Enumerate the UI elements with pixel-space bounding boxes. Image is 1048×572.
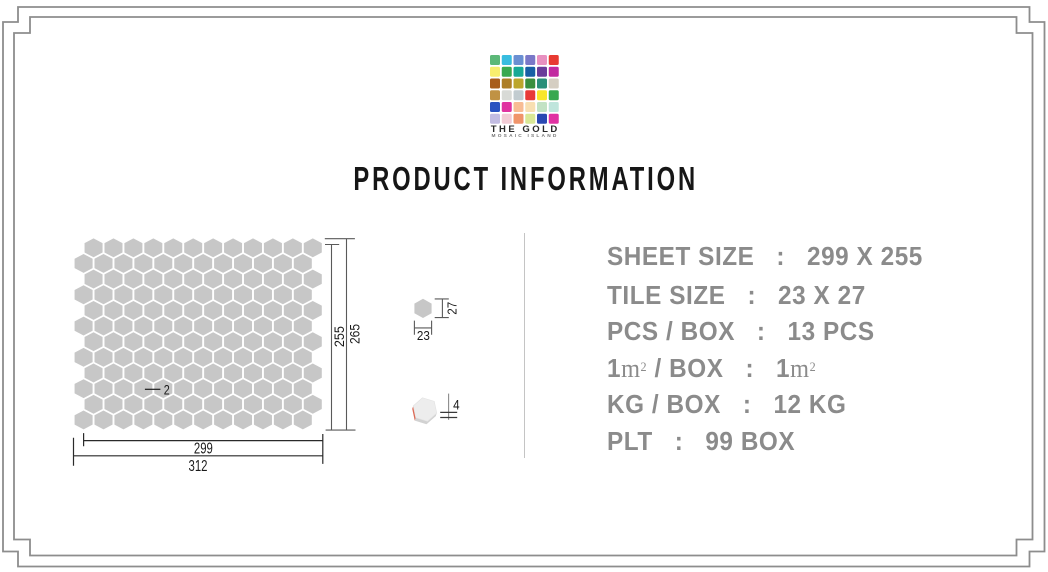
svg-text:27: 27	[445, 302, 460, 315]
svg-text:299: 299	[194, 441, 213, 458]
svg-text:23: 23	[417, 328, 430, 343]
svg-text:265: 265	[346, 324, 362, 344]
svg-text:312: 312	[189, 458, 208, 475]
svg-text:255: 255	[331, 326, 347, 347]
svg-text:2: 2	[164, 382, 170, 397]
svg-text:4: 4	[453, 396, 460, 412]
